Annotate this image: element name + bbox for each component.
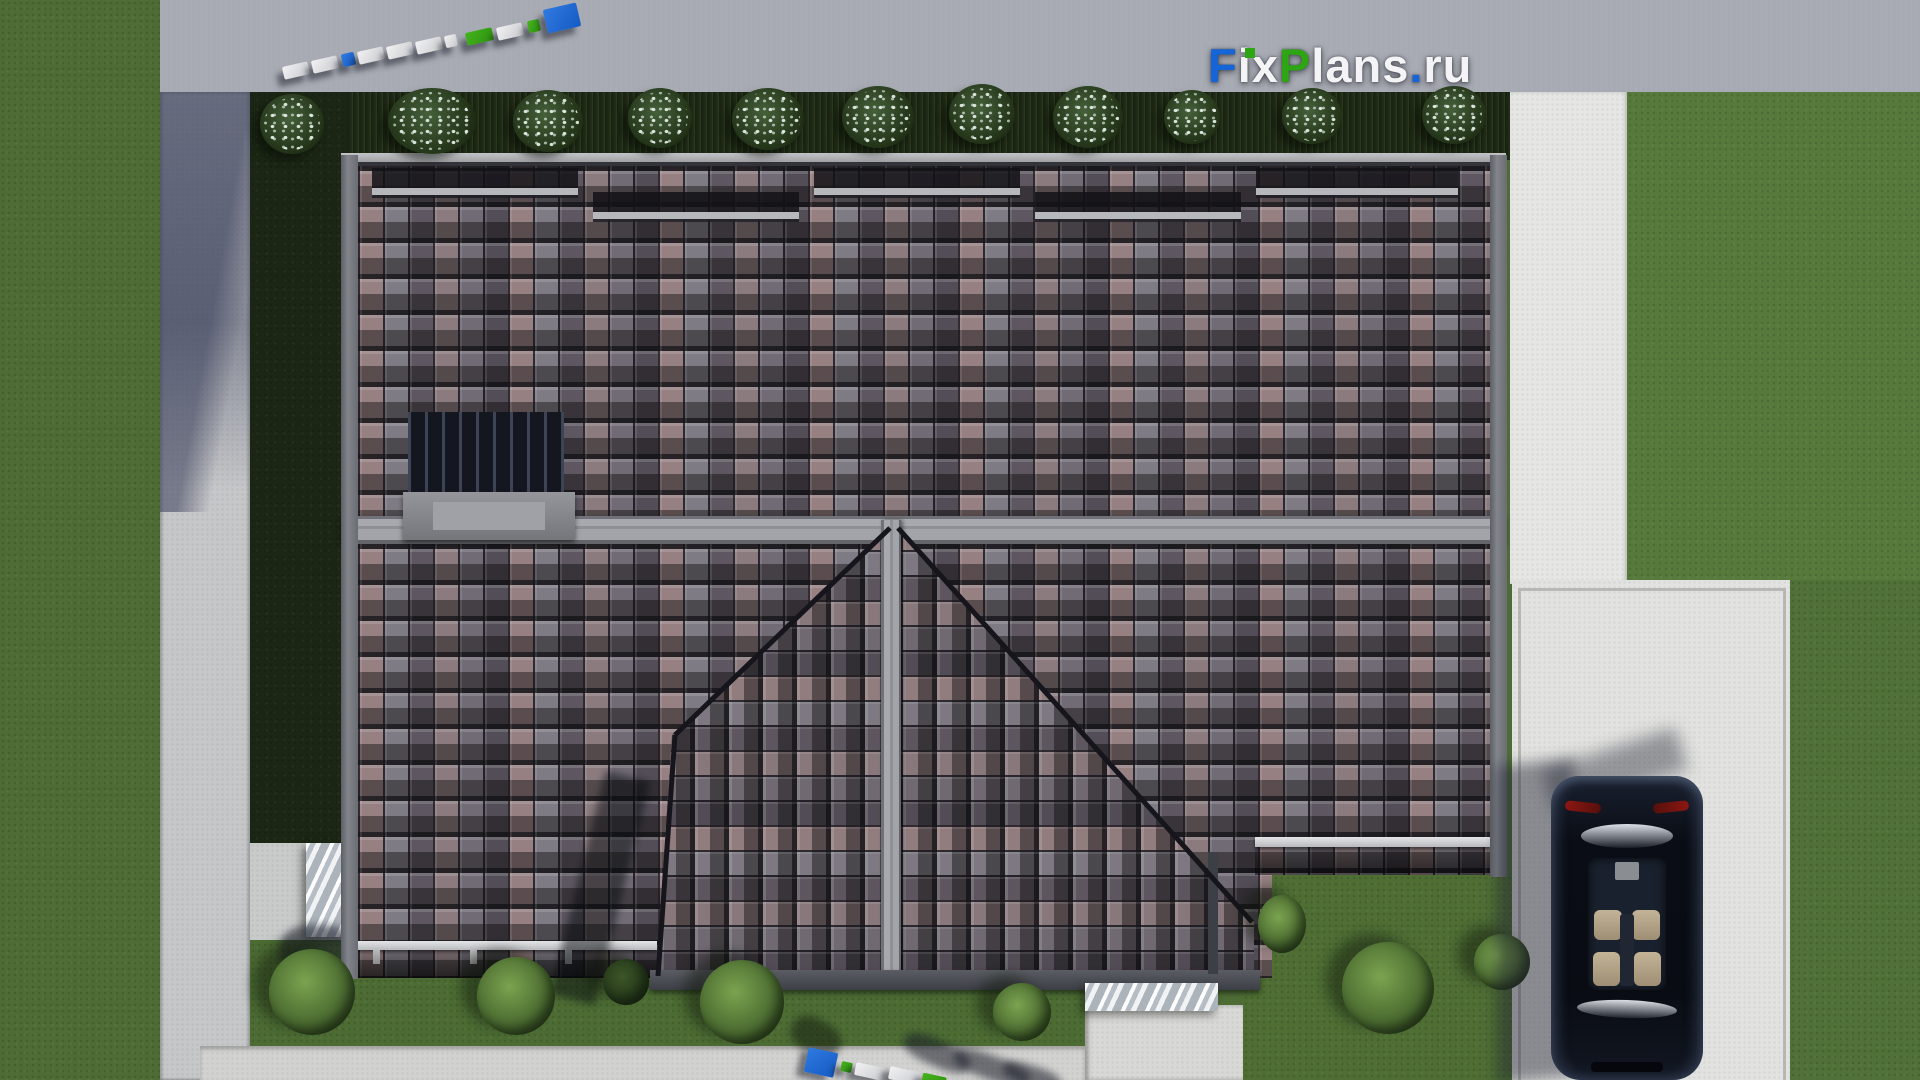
flower-bush	[513, 90, 583, 152]
roof-trim-west	[341, 155, 358, 979]
car-seat	[1634, 952, 1661, 986]
watermark-segment: ix	[1238, 39, 1279, 92]
eave-shade-southeast	[1255, 847, 1490, 875]
aerial-render-scene: FixPlans.ru	[0, 0, 1920, 1080]
car-seat	[1593, 952, 1620, 986]
lawn-northeast	[1627, 92, 1920, 584]
car-seat	[1594, 910, 1622, 940]
flower-bush	[1282, 88, 1342, 144]
flower-bush	[842, 86, 914, 148]
car-rear-console	[1615, 862, 1639, 880]
car	[1551, 776, 1703, 1080]
watermark-segment: lans	[1311, 39, 1409, 92]
entrance-canopy-south	[1085, 983, 1218, 1011]
roof-gutter-north	[341, 153, 1506, 162]
logo-3d-block	[840, 1061, 853, 1073]
watermark-segment: .	[1409, 39, 1423, 92]
snow-guard	[593, 192, 799, 222]
lawn-east-of-driveway	[1790, 580, 1920, 1080]
downspout-pipe	[1208, 852, 1218, 974]
garden-bush	[477, 957, 555, 1035]
snow-guard	[814, 168, 1020, 198]
watermark-segment: ru	[1423, 39, 1472, 92]
path-east	[1510, 92, 1627, 584]
car-taillight-right	[1653, 800, 1690, 814]
flower-bush	[949, 84, 1015, 144]
flower-bush	[732, 88, 804, 150]
lawn-left	[0, 0, 160, 1080]
garden-bush	[1342, 942, 1434, 1034]
gutter-southeast	[1255, 837, 1490, 847]
path-left-shadow	[160, 92, 250, 512]
garden-bush	[700, 960, 784, 1044]
garden-bush	[603, 959, 649, 1005]
car-windshield-reflection	[1577, 998, 1678, 1019]
car-rear-window-reflection	[1581, 824, 1673, 848]
watermark-segment: F	[1208, 39, 1238, 92]
flower-bush	[260, 94, 324, 154]
car-center-console	[1620, 914, 1634, 986]
flower-bush	[1164, 90, 1220, 144]
snow-guard	[1256, 168, 1458, 198]
watermark-segment: P	[1279, 39, 1311, 92]
garden-bush	[269, 949, 355, 1035]
car-taillight-left	[1565, 800, 1602, 814]
gutter-southwest	[357, 941, 657, 950]
car-seat	[1632, 910, 1660, 940]
watermark-i-dot	[1245, 48, 1255, 58]
flower-bush	[628, 88, 692, 148]
garden-bush	[993, 983, 1051, 1041]
snow-guard	[1035, 192, 1241, 222]
terrace-south	[1085, 1005, 1243, 1080]
flower-bush	[1053, 86, 1123, 148]
car-cabin-roof	[1588, 858, 1666, 990]
chimney-cap-top	[433, 502, 545, 530]
snow-guard	[372, 168, 578, 198]
garden-bush	[1258, 895, 1306, 953]
house-roof	[341, 153, 1506, 990]
roof-wing-ridge	[881, 520, 901, 986]
car-front-grille	[1591, 1062, 1663, 1072]
flower-bush	[388, 88, 476, 154]
flower-bush	[1422, 86, 1486, 144]
